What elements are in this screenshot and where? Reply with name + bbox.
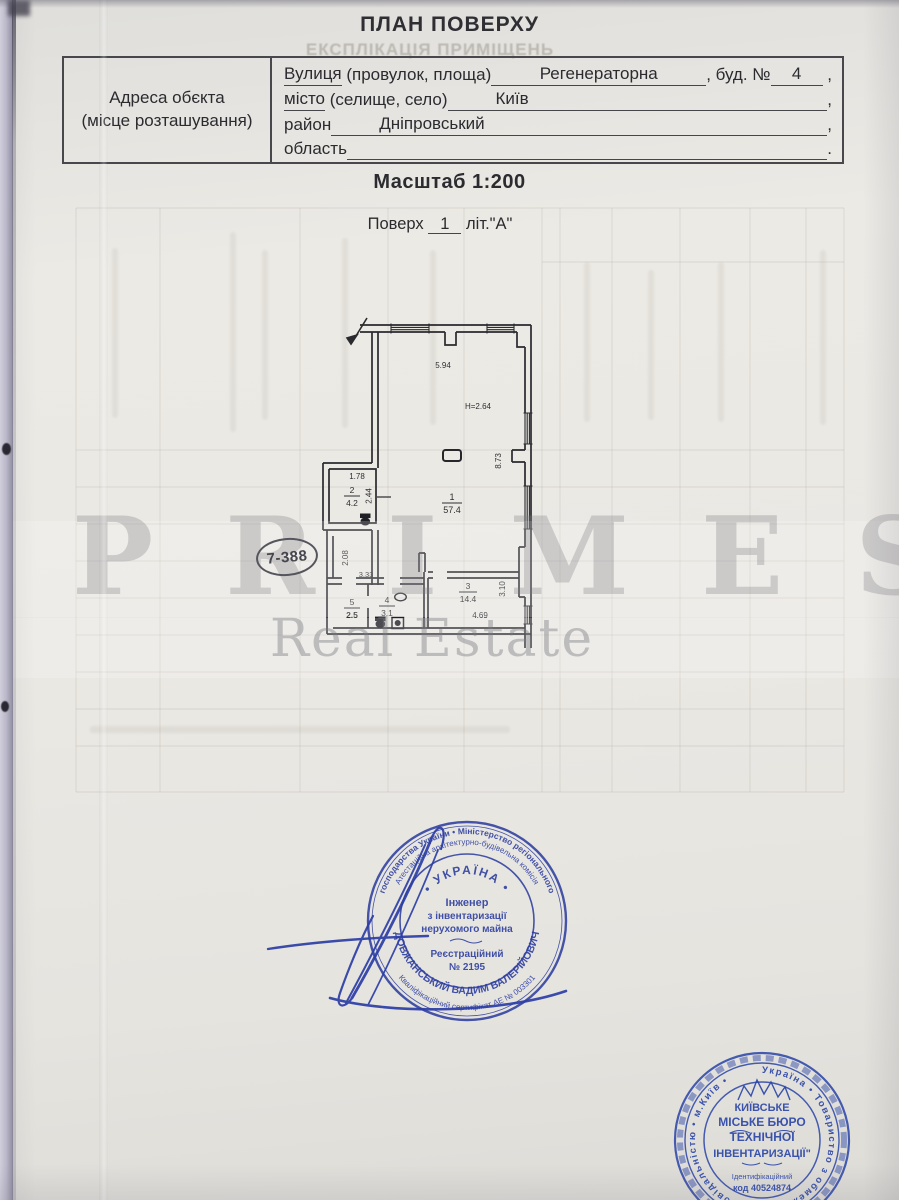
address-row-street: Вулиця (провулок, площа)Регенераторна, б… [284,62,832,86]
address-row-city: місто (селище, село)Київ, [284,87,832,111]
district-row-tail: , [827,113,832,136]
address-table-right-cell: Вулиця (провулок, площа)Регенераторна, б… [272,58,842,162]
district-value: Дніпровський [331,112,827,136]
svg-text:господарства України • Мініс: господарства України • Міністерство регі… [377,826,557,895]
bti-center-line5: Ідентифікаційний [732,1172,793,1181]
city-row-tail: , [827,88,832,111]
seal-center-line2: з інвентаризації [427,911,506,922]
address-table-left-cell: Адреса обєкта (місце розташування) [64,58,272,162]
street-label-rest: (провулок, площа) [342,63,492,86]
watermark-brand: PRIMES [0,503,899,611]
bti-center-line4: ІНВЕНТАРИЗАЦІЇ" [713,1147,811,1160]
address-label-line1: Адреса обєкта [109,87,224,110]
inventory-number: 7-388 [266,547,308,567]
floor-prefix: Поверх [368,215,424,233]
floor-line: Поверх 1 літ."А" [0,215,880,234]
region-label: область [284,137,347,160]
column-marker [443,450,461,461]
address-row-district: районДніпровський, [284,112,832,136]
seal-center-line1: Інженер [446,897,489,909]
binding-hole [1,701,9,712]
page-title: ПЛАН ПОВЕРХУ [0,13,899,37]
section-arrow-icon [347,318,367,344]
watermark-line2: Real Estate [0,610,864,670]
bti-stamp: Україна • Товариство з обмеженою відпові… [640,1035,899,1200]
address-table: Адреса обєкта (місце розташування) Вулиц… [62,56,844,164]
floor-letter: літ."А" [466,215,512,233]
address-row-region: область. [284,137,832,160]
bti-center-line2: МІСЬКЕ БЮРО [718,1115,805,1129]
city-label: місто [284,87,325,111]
svg-text:• УКРАЇНА •: • УКРАЇНА • [421,862,514,895]
seal-center-line5: № 2195 [449,962,486,973]
city-value: Київ [448,87,828,111]
street-label: Вулиця [284,62,342,86]
engineer-seal: господарства України • Міністерство регі… [255,806,627,1034]
paper-crease [99,0,108,1200]
region-row-tail: . [827,137,832,160]
dim-right-depth: 8.73 [494,453,503,469]
page-edge-shadow [12,0,16,1200]
seal-flourish [450,939,482,943]
building-label: , буд. № [706,63,770,86]
dim-top-width: 5.94 [435,361,451,370]
seal-center-line4: Реєстраційний [430,949,503,960]
scale-label: Масштаб 1:200 [0,171,899,194]
bti-center-line6: код 40524874 [733,1183,791,1193]
seal-ring-top-outer: господарства України • Міністерство регі… [377,826,557,895]
seal-country: • УКРАЇНА • [421,862,514,895]
floor-number: 1 [428,215,461,234]
binding-hole [2,443,11,455]
seal-center-line3: нерухомого майна [421,924,513,935]
building-number-value: 4 [771,62,823,86]
street-row-tail: , [823,63,832,86]
street-value: Регенераторна [491,62,706,86]
city-label-rest: (селище, село) [325,88,448,111]
district-label: район [284,113,331,136]
bti-center-line1: КИЇВСЬКЕ [734,1101,789,1114]
region-value [347,159,827,160]
dim-room2-width: 1.78 [349,472,365,481]
top-edge-shadow [0,0,899,8]
dim-height-note: Н=2.64 [465,402,492,411]
scanned-floor-plan-page: ЕКСПЛІКАЦІЯ ПРИМІЩЕНЬ ПЛАН ПОВЕРХУ Адрес… [0,0,899,1200]
bti-center-line3: ТЕХНІЧНОЇ [729,1129,795,1144]
